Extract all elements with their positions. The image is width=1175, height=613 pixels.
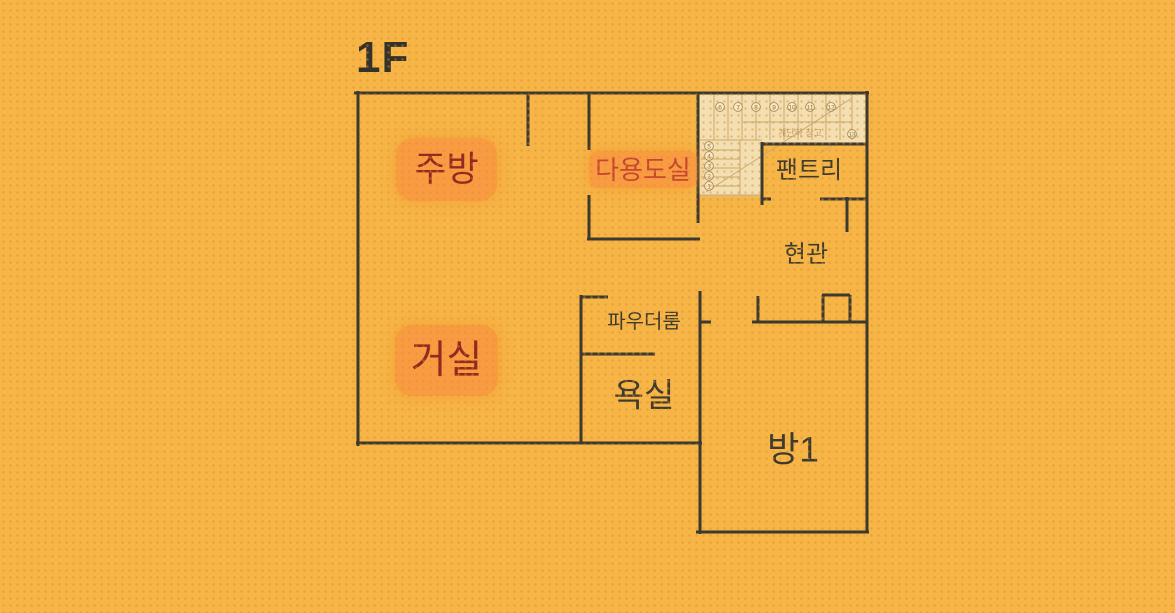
room-label-bathroom: 욕실 (614, 379, 675, 412)
room-label-kitchen: 주방 (398, 140, 495, 199)
floorplan-stage: 1F 12345678910111213계단하 창고 주방다용도실팬트리현관파우… (0, 0, 1175, 613)
room-label-pantry: 팬트리 (776, 159, 842, 183)
room-label-powder-room: 파우더룸 (607, 312, 681, 332)
room-label-living-room: 거실 (397, 327, 496, 394)
room-label-utility-room: 다용도실 (591, 153, 695, 186)
room-label-room1: 방1 (767, 433, 819, 468)
room-label-layer: 주방다용도실팬트리현관파우더룸거실욕실방1 (0, 0, 1175, 613)
room-label-entrance: 현관 (784, 243, 828, 267)
